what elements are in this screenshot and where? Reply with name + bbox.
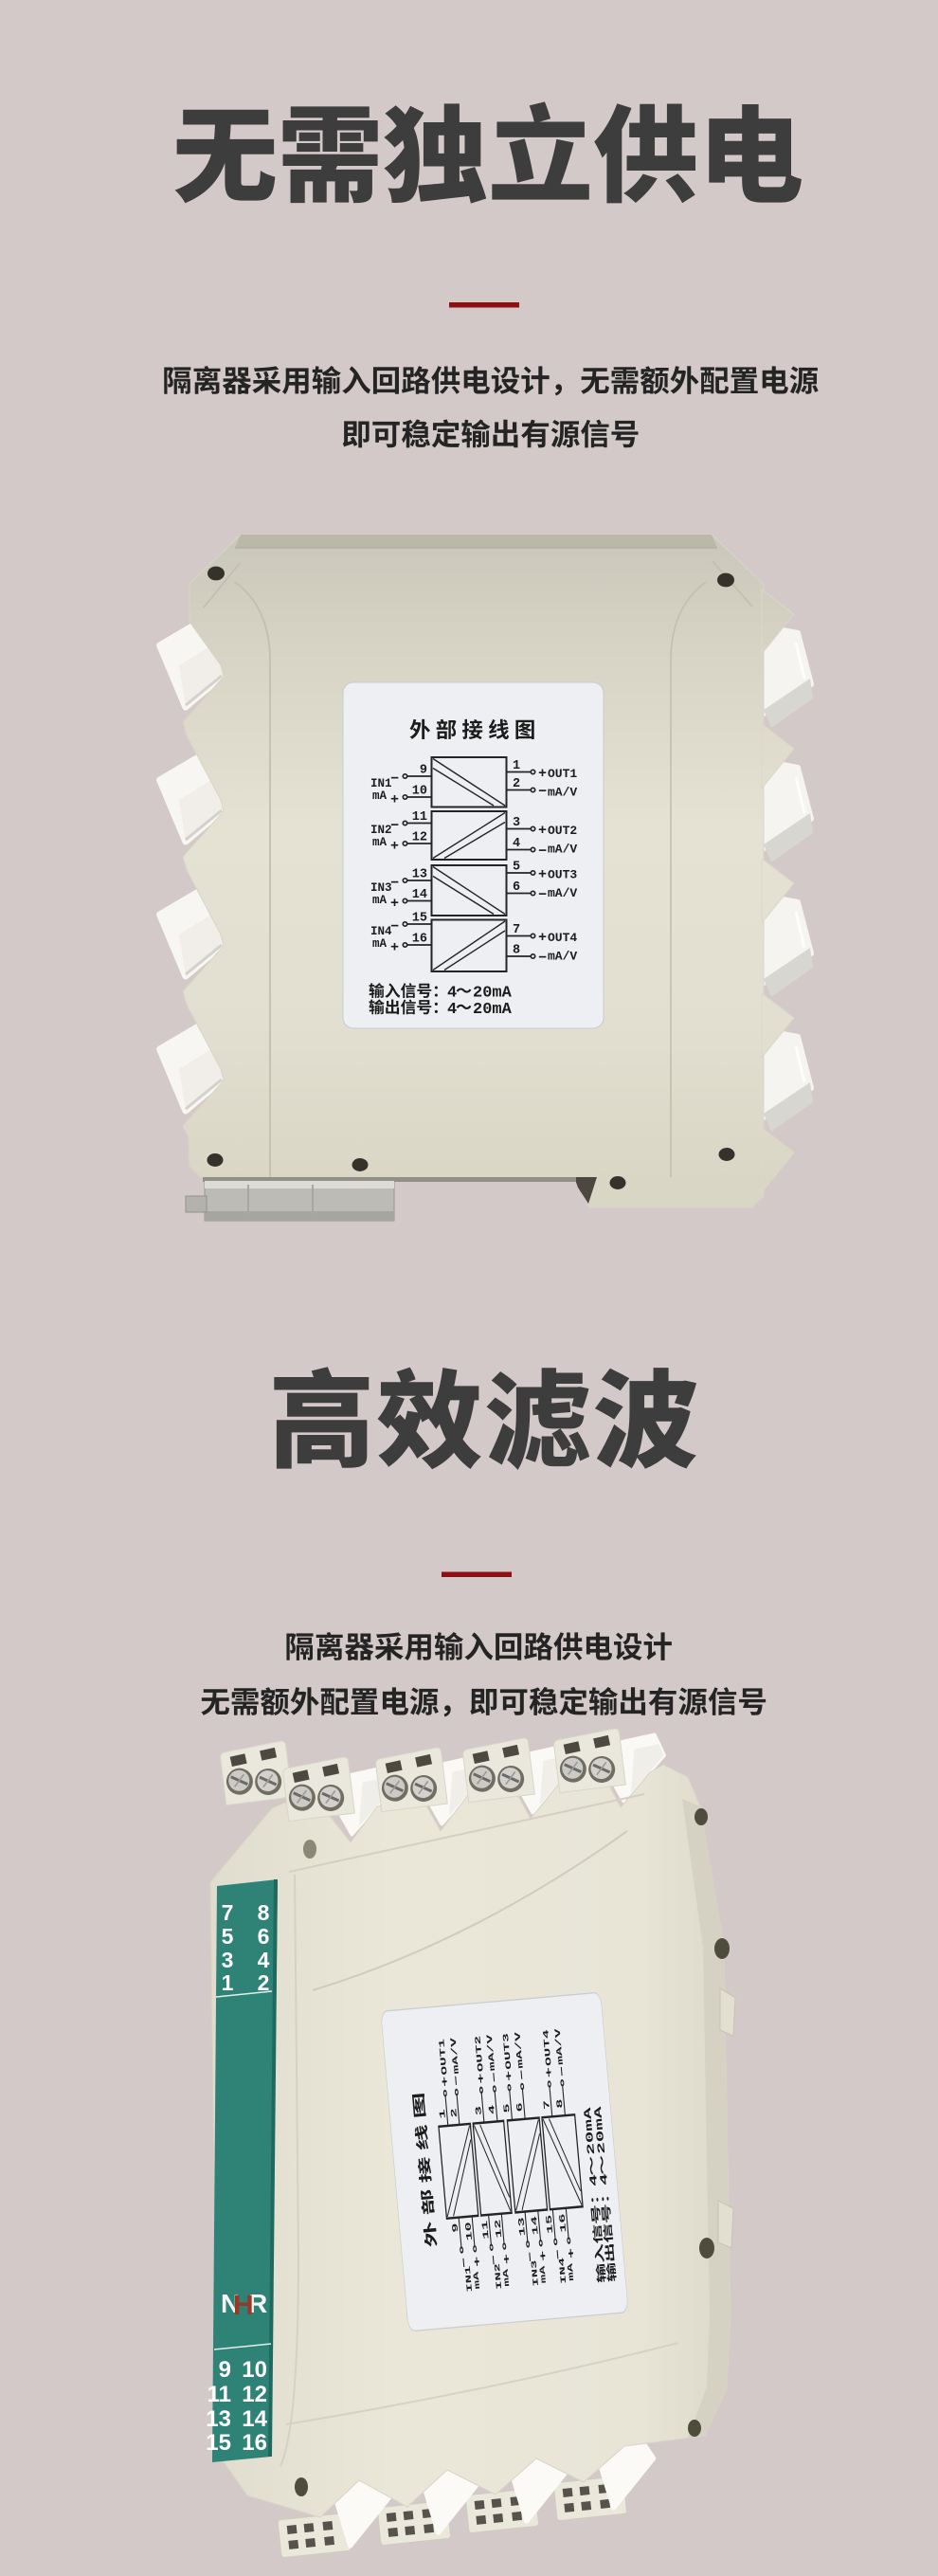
svg-text:3: 3 [222,1948,234,1972]
svg-text:10: 10 [242,2357,267,2383]
svg-text:6: 6 [258,1924,270,1949]
svg-text:14: 14 [242,2406,267,2432]
svg-text:9: 9 [219,2357,231,2383]
svg-text:5: 5 [222,1924,234,1949]
svg-text:11: 11 [207,2382,231,2407]
svg-text:H: H [233,2290,254,2321]
svg-text:4: 4 [258,1948,270,1972]
svg-text:12: 12 [242,2382,267,2407]
svg-text:13: 13 [206,2406,231,2432]
svg-text:8: 8 [258,1900,270,1925]
svg-text:7: 7 [222,1900,234,1925]
svg-text:1: 1 [222,1970,234,1995]
svg-text:16: 16 [242,2430,267,2456]
svg-text:15: 15 [206,2430,231,2456]
